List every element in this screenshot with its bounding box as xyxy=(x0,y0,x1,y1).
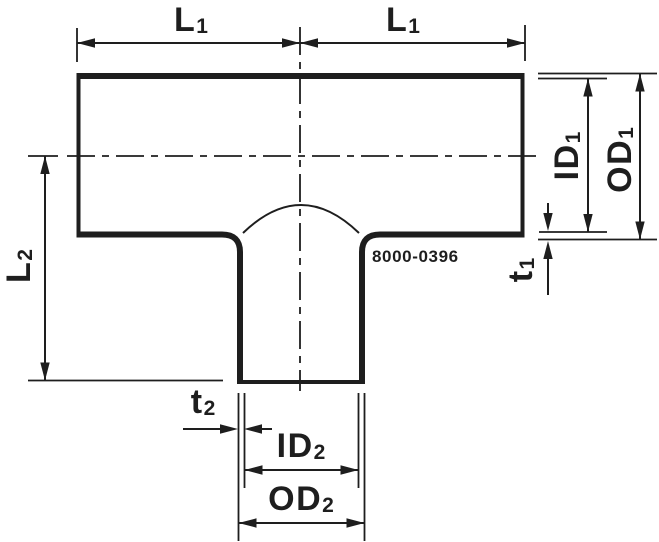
dimension-id1: ID1 xyxy=(548,79,593,233)
arrowhead-down xyxy=(543,213,552,231)
arrowhead-up xyxy=(635,74,644,92)
arrowhead-right xyxy=(347,518,365,527)
arrowhead-down xyxy=(635,222,644,240)
arrowhead-left xyxy=(239,518,257,527)
arrowhead-up xyxy=(583,79,592,97)
dimension-l1-left: L1 xyxy=(77,1,300,48)
arrowhead-down xyxy=(40,363,49,381)
run-bottom-left-wall-and-branch-left-wall xyxy=(77,235,240,382)
label-t2: t2 xyxy=(191,383,216,421)
label-l2: L2 xyxy=(0,249,38,283)
label-od1: OD1 xyxy=(601,127,639,193)
dimension-l2: L2 xyxy=(0,156,50,381)
arrowhead-up xyxy=(543,241,552,259)
drawing-canvas: L1 L1 L2 ID1 OD1 t1 xyxy=(0,0,659,542)
dimension-id2: ID2 xyxy=(245,427,359,475)
arrowhead-left xyxy=(244,424,262,433)
arrowhead-right xyxy=(507,38,525,47)
dimension-t2: t2 xyxy=(183,383,272,434)
dimension-od2: OD2 xyxy=(239,480,365,528)
arrowhead-right xyxy=(220,424,238,433)
extension-lines xyxy=(28,25,657,541)
label-l1-right: L1 xyxy=(386,1,420,39)
arrowhead-up xyxy=(40,156,49,174)
tee-fitting-technical-drawing: L1 L1 L2 ID1 OD1 t1 xyxy=(0,0,659,542)
part-number: 8000-0396 xyxy=(372,247,459,266)
crotch-intersection-curve xyxy=(243,205,359,233)
dimension-l1-right: L1 xyxy=(300,1,525,48)
label-od2: OD2 xyxy=(268,480,334,518)
arrowhead-left xyxy=(77,38,95,47)
arrowhead-down xyxy=(583,214,592,232)
dimension-t1: t1 xyxy=(502,203,553,295)
label-t1: t1 xyxy=(502,257,540,282)
label-id2: ID2 xyxy=(277,427,326,465)
arrowhead-left xyxy=(245,465,263,474)
arrowhead-right xyxy=(282,38,300,47)
arrowhead-right xyxy=(341,465,359,474)
label-id1: ID1 xyxy=(548,131,586,180)
centerlines xyxy=(67,27,536,391)
label-l1-left: L1 xyxy=(174,1,208,39)
dimension-od1: OD1 xyxy=(601,74,645,240)
arrowhead-left xyxy=(300,38,318,47)
